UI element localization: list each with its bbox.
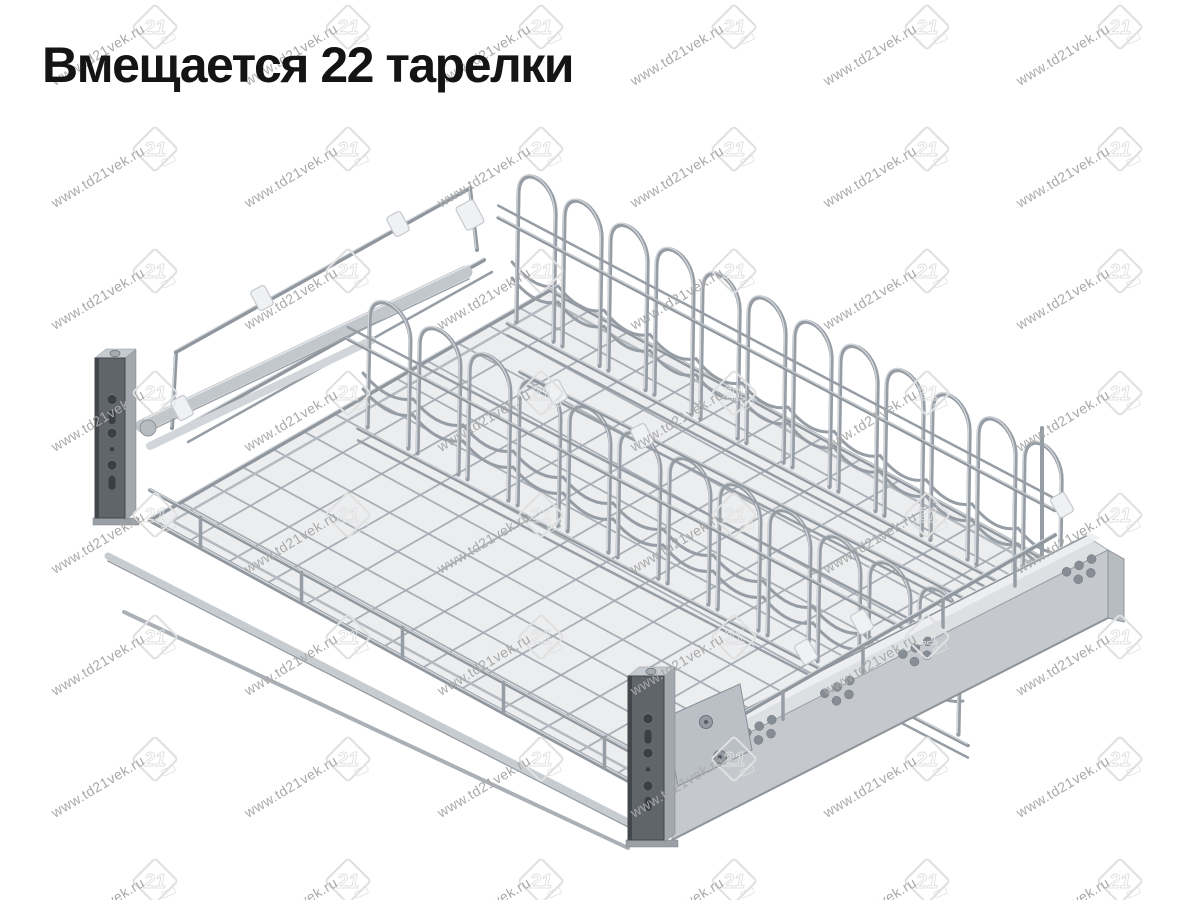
svg-text:21: 21: [915, 261, 938, 283]
svg-text:21: 21: [722, 749, 745, 771]
svg-text:21: 21: [143, 261, 166, 283]
svg-text:21: 21: [1108, 17, 1131, 39]
svg-text:21: 21: [722, 17, 745, 39]
svg-text:21: 21: [722, 627, 745, 649]
svg-text:21: 21: [722, 261, 745, 283]
svg-text:21: 21: [529, 505, 552, 527]
svg-text:21: 21: [1108, 505, 1131, 527]
svg-text:21: 21: [1108, 139, 1131, 161]
svg-text:21: 21: [1108, 749, 1131, 771]
svg-text:21: 21: [143, 749, 166, 771]
watermark-url-text: www.td21vek.ru: [626, 142, 726, 211]
svg-text:21: 21: [336, 627, 359, 649]
svg-text:21: 21: [722, 505, 745, 527]
svg-text:21: 21: [529, 627, 552, 649]
watermark-url-text: www.td21vek.ru: [47, 874, 147, 900]
watermark-url-text: www.td21vek.ru: [1012, 874, 1112, 900]
svg-text:21: 21: [529, 383, 552, 405]
watermark-url-text: www.td21vek.ru: [433, 874, 533, 900]
svg-text:21: 21: [915, 749, 938, 771]
watermark-url-text: www.td21vek.ru: [240, 874, 340, 900]
svg-text:21: 21: [915, 505, 938, 527]
svg-text:21: 21: [529, 261, 552, 283]
watermark-url-text: www.td21vek.ru: [240, 142, 340, 211]
watermark-url-text: www.td21vek.ru: [819, 386, 919, 455]
watermark-url-text: www.td21vek.ru: [819, 752, 919, 821]
watermark-url-text: www.td21vek.ru: [626, 20, 726, 89]
svg-text:21: 21: [336, 749, 359, 771]
watermark-url-text: www.td21vek.ru: [1012, 20, 1112, 89]
watermark-url-text: www.td21vek.ru: [1012, 142, 1112, 211]
watermark-url-text: www.td21vek.ru: [1012, 386, 1112, 455]
watermark-url-text: www.td21vek.ru: [819, 264, 919, 333]
svg-text:21: 21: [722, 139, 745, 161]
svg-text:21: 21: [915, 17, 938, 39]
svg-text:21: 21: [143, 505, 166, 527]
svg-text:21: 21: [336, 505, 359, 527]
svg-text:21: 21: [143, 383, 166, 405]
plastic-clip: [1050, 491, 1075, 518]
svg-text:21: 21: [529, 139, 552, 161]
svg-text:21: 21: [915, 627, 938, 649]
svg-text:21: 21: [722, 383, 745, 405]
mount-bracket-left: [93, 349, 139, 525]
svg-text:21: 21: [915, 871, 938, 893]
watermark-url-text: www.td21vek.ru: [819, 20, 919, 89]
watermark-url-text: www.td21vek.ru: [1012, 264, 1112, 333]
svg-text:21: 21: [336, 871, 359, 893]
svg-text:21: 21: [1108, 383, 1131, 405]
svg-text:21: 21: [529, 749, 552, 771]
svg-text:21: 21: [336, 261, 359, 283]
svg-text:21: 21: [336, 139, 359, 161]
svg-text:21: 21: [1108, 261, 1131, 283]
svg-text:21: 21: [143, 627, 166, 649]
caption-capacity: Вмещается 22 тарелки: [42, 36, 573, 94]
watermark-url-text: www.td21vek.ru: [626, 264, 726, 333]
watermark-url-text: www.td21vek.ru: [240, 752, 340, 821]
watermark-url-text: www.td21vek.ru: [819, 874, 919, 900]
watermark-url-text: www.td21vek.ru: [47, 630, 147, 699]
svg-text:21: 21: [143, 871, 166, 893]
svg-text:21: 21: [529, 871, 552, 893]
watermark-url-text: www.td21vek.ru: [626, 874, 726, 900]
dish-rack-illustration: 21www.td21vek.ru21www.td21vek.ru21www.td…: [0, 0, 1200, 900]
svg-text:21: 21: [722, 871, 745, 893]
svg-text:21: 21: [1108, 627, 1131, 649]
svg-text:21: 21: [915, 139, 938, 161]
svg-text:21: 21: [915, 383, 938, 405]
svg-text:21: 21: [336, 383, 359, 405]
plastic-clip: [455, 199, 485, 231]
svg-text:21: 21: [143, 139, 166, 161]
watermark-url-text: www.td21vek.ru: [47, 142, 147, 211]
watermark-url-text: www.td21vek.ru: [1012, 752, 1112, 821]
watermark-url-text: www.td21vek.ru: [47, 264, 147, 333]
watermark-url-text: www.td21vek.ru: [47, 752, 147, 821]
watermark-url-text: www.td21vek.ru: [819, 142, 919, 211]
svg-text:21: 21: [1108, 871, 1131, 893]
product-photo: 21www.td21vek.ru21www.td21vek.ru21www.td…: [0, 0, 1200, 900]
